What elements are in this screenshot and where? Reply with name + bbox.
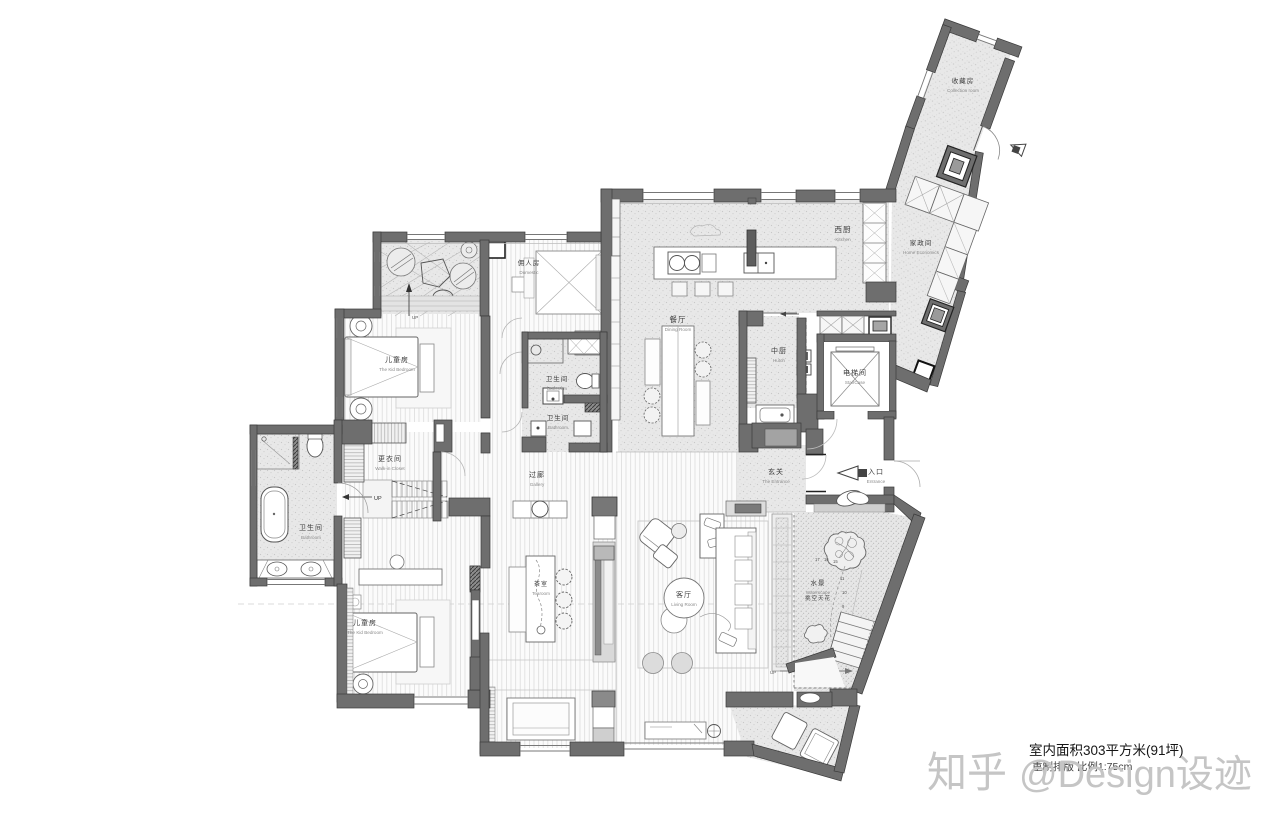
svg-text:挑空天花: 挑空天花 xyxy=(805,594,831,602)
svg-text:更衣间: 更衣间 xyxy=(378,454,402,463)
svg-text:儿童房: 儿童房 xyxy=(353,618,377,627)
svg-text:Living Room: Living Room xyxy=(671,602,697,607)
svg-text:@Design设迹: @Design设迹 xyxy=(1019,754,1252,796)
svg-text:Gallery: Gallery xyxy=(530,482,545,487)
svg-text:卫生间: 卫生间 xyxy=(547,413,570,422)
svg-text:10: 10 xyxy=(842,590,847,595)
svg-text:佣人房: 佣人房 xyxy=(518,258,541,267)
svg-text:17: 17 xyxy=(815,557,820,562)
svg-text:茶室: 茶室 xyxy=(534,580,548,588)
svg-text:The Kid Bedroom: The Kid Bedroom xyxy=(347,630,383,635)
svg-text:Collection room: Collection room xyxy=(947,88,979,93)
svg-text:Entrance: Entrance xyxy=(867,479,886,484)
svg-text:Domestic: Domestic xyxy=(519,270,539,275)
svg-text:Bathroom: Bathroom xyxy=(301,535,321,540)
svg-text:电梯间: 电梯间 xyxy=(843,368,867,377)
svg-text:玄关: 玄关 xyxy=(768,467,784,476)
svg-text:过廊: 过廊 xyxy=(529,470,545,479)
svg-text:Bathroom: Bathroom xyxy=(548,425,568,430)
svg-text:儿童房: 儿童房 xyxy=(385,355,409,364)
svg-text:客厅: 客厅 xyxy=(676,590,692,599)
svg-text:UP: UP xyxy=(770,670,776,675)
svg-text:Dining Room: Dining Room xyxy=(665,327,692,332)
svg-text:卫生间: 卫生间 xyxy=(299,523,323,532)
svg-text:水景: 水景 xyxy=(811,578,826,587)
svg-text:UP: UP xyxy=(412,315,418,320)
svg-text:16: 16 xyxy=(824,557,829,562)
svg-text:餐厅: 餐厅 xyxy=(670,315,687,324)
svg-text:收藏房: 收藏房 xyxy=(952,76,975,85)
svg-text:Tearoom: Tearoom xyxy=(532,591,550,596)
svg-text:UP: UP xyxy=(374,496,382,502)
svg-text:The Entrance: The Entrance xyxy=(762,479,790,484)
svg-text:StairCase: StairCase xyxy=(845,380,866,385)
svg-text:Waterscape: Waterscape xyxy=(806,590,831,595)
svg-text:11: 11 xyxy=(840,576,845,581)
svg-text:The Kid Bedroom: The Kid Bedroom xyxy=(379,367,415,372)
svg-text:入口: 入口 xyxy=(868,468,884,476)
svg-text:Hutch: Hutch xyxy=(773,358,785,363)
svg-text:Home Economics: Home Economics xyxy=(903,250,940,255)
svg-text:西厨: 西厨 xyxy=(835,225,852,234)
svg-text:Bathroom: Bathroom xyxy=(547,386,567,391)
svg-text:卫生间: 卫生间 xyxy=(546,374,569,383)
svg-text:Walk-in Closet: Walk-in Closet xyxy=(375,466,405,471)
svg-text:中厨: 中厨 xyxy=(771,346,787,355)
svg-text:家政间: 家政间 xyxy=(910,238,933,247)
svg-text:知乎: 知乎 xyxy=(927,749,1007,796)
svg-text:15: 15 xyxy=(833,559,838,564)
svg-text:Kitchen: Kitchen xyxy=(835,237,851,242)
